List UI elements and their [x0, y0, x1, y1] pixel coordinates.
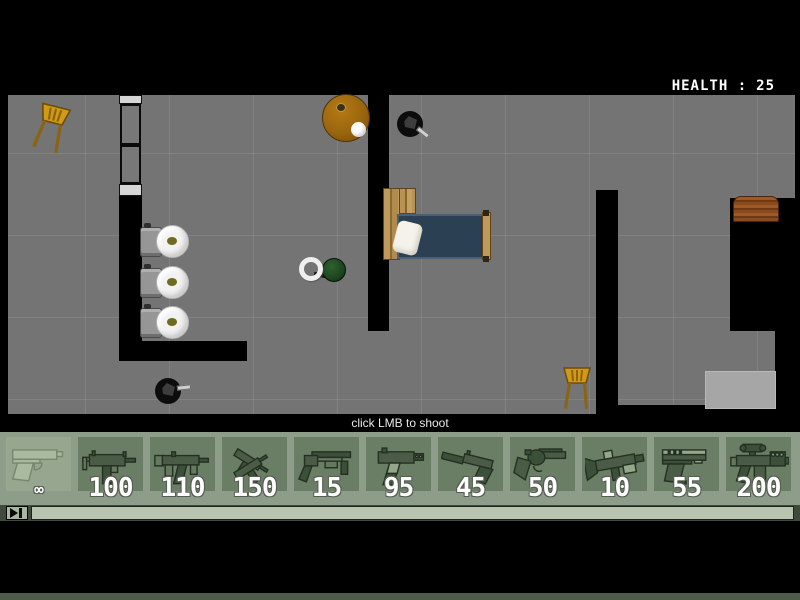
health-value: 25	[756, 78, 775, 94]
toilet-pipe	[144, 304, 151, 309]
door-panel[interactable]	[120, 145, 141, 184]
toilet	[136, 305, 188, 339]
ammo-count-rocket-launcher: 10	[582, 473, 647, 503]
toilet-water	[167, 237, 177, 245]
door-panel[interactable]	[120, 104, 141, 145]
wooden-chair	[560, 366, 594, 412]
ammo-count-uzi: 100	[78, 473, 143, 503]
health-label: HEALTH :	[672, 78, 747, 94]
bed-knob	[483, 210, 489, 216]
wooden-chair	[25, 100, 78, 159]
enemy-gun-barrel	[177, 384, 191, 390]
hint-text: click LMB to shoot	[351, 416, 448, 430]
toilet-water	[167, 278, 177, 286]
toilet	[136, 265, 188, 299]
bed-knob	[483, 256, 489, 262]
game-stage: HEALTH : 25	[0, 0, 800, 600]
crosshair-cursor	[299, 257, 323, 281]
plate	[351, 122, 366, 137]
ammo-count-handgun: 55	[654, 473, 719, 503]
ammo-count-scoped-rifle: 200	[726, 473, 791, 503]
bed-footboard	[482, 212, 491, 260]
weapon-bar: ∞100110150159545501055200	[0, 432, 800, 505]
ammo-row: ∞100110150159545501055200	[6, 473, 791, 503]
round-table	[322, 94, 370, 142]
ammo-count-revolver: 50	[510, 473, 575, 503]
bed-headboard-plank	[399, 188, 416, 214]
wall	[596, 190, 618, 414]
wooden-dresser	[733, 196, 779, 222]
toilet-water	[167, 318, 177, 326]
toilet-pipe	[144, 264, 151, 269]
toilet-pipe	[144, 223, 151, 228]
ammo-count-mp5: 110	[150, 473, 215, 503]
health-hud: HEALTH : 25	[672, 78, 775, 94]
enemy-character[interactable]	[155, 378, 181, 404]
door-frame-bottom	[119, 184, 142, 196]
hint-bar: click LMB to shoot	[0, 414, 800, 432]
wall	[775, 331, 795, 414]
table-item	[336, 103, 346, 112]
ammo-count-silenced-pistol: 45	[438, 473, 503, 503]
chair-graphic	[560, 366, 594, 412]
floor-mat	[705, 371, 776, 409]
ammo-count-shotgun: 15	[294, 473, 359, 503]
bottom-strip	[0, 593, 800, 600]
game-map[interactable]	[8, 95, 795, 414]
ammo-count-tec9: 95	[366, 473, 431, 503]
ammo-count-pistol: ∞	[6, 473, 71, 503]
chair-graphic	[25, 100, 78, 159]
wall	[142, 341, 247, 361]
bed	[383, 188, 495, 260]
enemy-gun-barrel	[416, 126, 430, 139]
loading-progress-bar[interactable]	[31, 506, 794, 520]
door-frame-top	[119, 95, 142, 104]
letterbox	[0, 521, 800, 593]
play-skip-icon	[9, 508, 25, 518]
ammo-count-dual-uzis: 150	[222, 473, 287, 503]
skip-button[interactable]	[6, 506, 28, 520]
player-scrubber	[0, 505, 800, 521]
enemy-character[interactable]	[397, 111, 423, 137]
toilet	[136, 224, 188, 258]
player-character	[322, 258, 346, 282]
player-head	[322, 258, 346, 282]
